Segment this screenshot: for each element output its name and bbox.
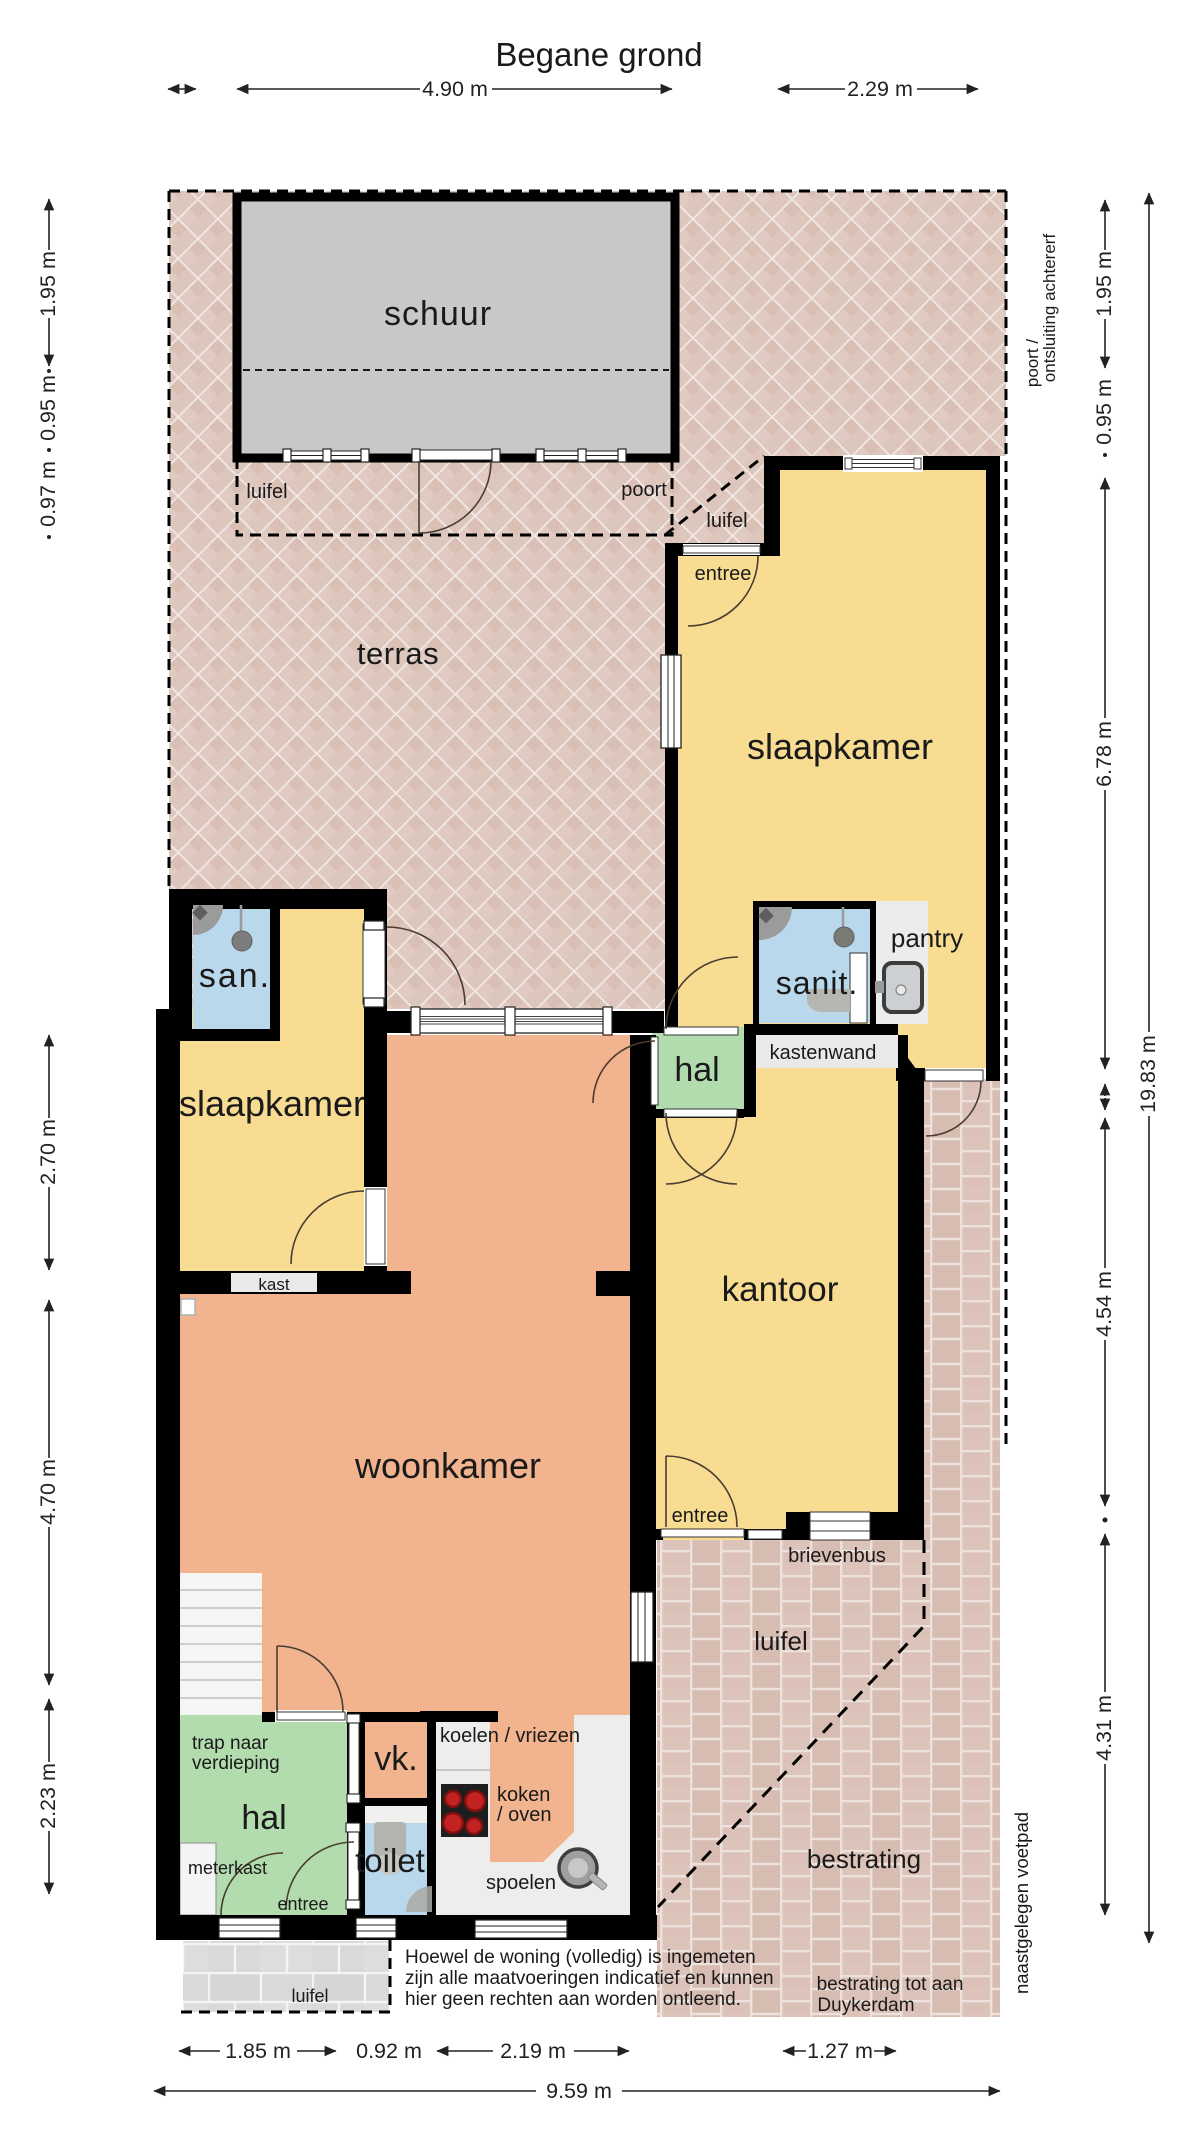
svg-text:poort: poort	[621, 479, 667, 501]
svg-text:0.95 m: 0.95 m	[1092, 379, 1116, 445]
svg-text:Begane grond: Begane grond	[495, 36, 702, 73]
svg-text:6.78 m: 6.78 m	[1092, 721, 1116, 787]
svg-text:hal: hal	[674, 1051, 719, 1089]
svg-text:san.: san.	[199, 957, 271, 995]
svg-text:Hoewel de woning (volledig) is: Hoewel de woning (volledig) is ingemeten	[405, 1947, 756, 1968]
svg-text:0.92 m: 0.92 m	[356, 2039, 422, 2063]
svg-text:bestrating: bestrating	[807, 1844, 921, 1874]
svg-text:4.31 m: 4.31 m	[1092, 1695, 1116, 1761]
svg-text:spoelen: spoelen	[486, 1872, 556, 1894]
svg-text:toilet: toilet	[355, 1842, 425, 1879]
svg-text:hier geen rechten aan worden o: hier geen rechten aan worden ontleend.	[405, 1989, 741, 2010]
svg-text:entree: entree	[672, 1505, 729, 1527]
svg-text:kantoor: kantoor	[722, 1270, 839, 1309]
svg-text:2.23 m: 2.23 m	[36, 1763, 60, 1829]
svg-text:entree: entree	[695, 563, 752, 585]
svg-text:sanit.: sanit.	[776, 965, 858, 1001]
svg-text:luifel: luifel	[706, 510, 747, 532]
svg-text:9.59 m: 9.59 m	[546, 2079, 612, 2103]
svg-text:slaapkamer: slaapkamer	[179, 1083, 365, 1124]
svg-text:brievenbus: brievenbus	[788, 1545, 886, 1567]
svg-text:2.19 m: 2.19 m	[500, 2039, 566, 2063]
svg-text:1.95 m: 1.95 m	[36, 251, 60, 317]
svg-text:slaapkamer: slaapkamer	[747, 726, 933, 767]
svg-text:koken: koken	[497, 1784, 550, 1806]
svg-text:koelen / vriezen: koelen / vriezen	[440, 1725, 580, 1747]
svg-text:4.54 m: 4.54 m	[1092, 1271, 1116, 1337]
svg-text:2.29 m: 2.29 m	[847, 77, 913, 101]
svg-text:2.70 m: 2.70 m	[36, 1119, 60, 1185]
svg-text:19.83 m: 19.83 m	[1136, 1035, 1160, 1113]
svg-text:woonkamer: woonkamer	[354, 1445, 541, 1486]
svg-text:terras: terras	[357, 636, 439, 671]
svg-text:kastenwand: kastenwand	[770, 1042, 877, 1064]
svg-text:ontsluiting achtererf: ontsluiting achtererf	[1040, 234, 1059, 383]
svg-text:1.85 m: 1.85 m	[225, 2039, 291, 2063]
svg-text:luifel: luifel	[754, 1626, 807, 1656]
svg-text:verdieping: verdieping	[192, 1753, 280, 1774]
svg-text:schuur: schuur	[384, 295, 492, 333]
svg-text:entree: entree	[277, 1894, 328, 1914]
svg-text:4.70 m: 4.70 m	[36, 1459, 60, 1525]
svg-text:kast: kast	[258, 1275, 289, 1294]
svg-text:trap naar: trap naar	[192, 1733, 269, 1754]
svg-text:naastgelegen voetpad: naastgelegen voetpad	[1011, 1812, 1032, 1994]
svg-text:/ oven: / oven	[497, 1804, 551, 1826]
svg-text:pantry: pantry	[891, 923, 963, 953]
svg-text:Duykerdam: Duykerdam	[817, 1995, 914, 2016]
svg-text:4.90 m: 4.90 m	[422, 77, 488, 101]
svg-text:bestrating tot aan: bestrating tot aan	[817, 1974, 964, 1995]
svg-text:luifel: luifel	[291, 1986, 328, 2006]
svg-text:meterkast: meterkast	[188, 1858, 267, 1878]
svg-text:0.95 m: 0.95 m	[36, 375, 60, 441]
svg-text:1.95 m: 1.95 m	[1092, 251, 1116, 317]
svg-text:0.97 m: 0.97 m	[36, 461, 60, 527]
svg-text:1.27 m: 1.27 m	[807, 2039, 873, 2063]
svg-text:vk.: vk.	[374, 1740, 417, 1778]
svg-text:zijn alle maatvoeringen indica: zijn alle maatvoeringen indicatief en ku…	[405, 1968, 774, 1989]
svg-text:hal: hal	[241, 1799, 286, 1837]
svg-text:luifel: luifel	[246, 481, 287, 503]
